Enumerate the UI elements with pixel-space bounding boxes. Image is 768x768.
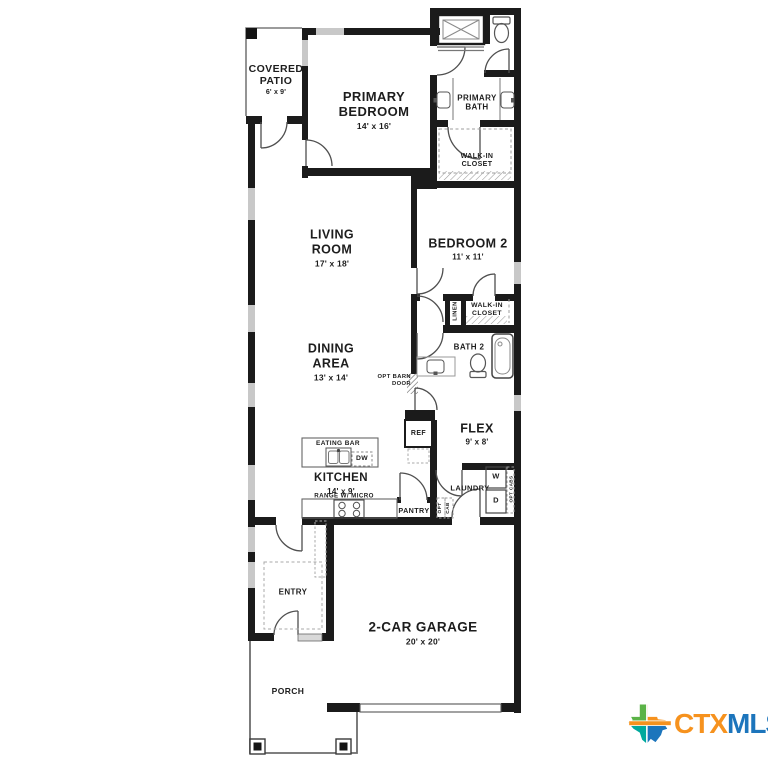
room-dims: 6' x 9' <box>245 89 307 97</box>
room-name: KITCHEN <box>314 472 368 486</box>
label-bath-2: BATH 2 <box>453 342 485 351</box>
label-pantry: PANTRY <box>398 507 429 515</box>
feature-name: RANGE W/ MICRO <box>314 492 374 499</box>
label-primary-walk-in-closet: WALK-IN CLOSET <box>454 153 500 170</box>
refrigerator-box <box>405 420 432 463</box>
feature-name: OPT <box>438 502 444 513</box>
label-walk-in-closet-2: WALK-IN CLOSET <box>465 302 509 318</box>
room-dims: 14' x 16' <box>332 121 416 131</box>
feature-name: OPT BARN DOOR <box>375 374 411 388</box>
shower <box>438 15 484 51</box>
texas-icon <box>628 704 672 744</box>
room-dims: 13' x 14' <box>303 372 359 382</box>
label-porch: PORCH <box>272 686 305 696</box>
feature-name: EATING BAR <box>316 440 360 448</box>
label-refrigerator: REF <box>411 429 426 437</box>
label-opt-barn-door: OPT BARN DOOR <box>375 374 411 388</box>
logo-mls-text: MLS <box>727 710 768 738</box>
label-opt-cab-2: CAB <box>446 502 452 514</box>
room-name: LIVING ROOM <box>304 228 360 258</box>
room-name: DINING AREA <box>303 342 359 372</box>
room-dims: 9' x 8' <box>460 437 494 446</box>
room-name: WALK-IN CLOSET <box>454 153 500 170</box>
porch-posts <box>250 739 351 754</box>
label-opt-cab-1: OPT <box>438 502 444 513</box>
label-linen: LINEN <box>453 301 460 320</box>
room-dims: 20' x 20' <box>368 636 477 646</box>
label-range-micro: RANGE W/ MICRO <box>314 492 374 499</box>
feature-name: CAB <box>446 502 452 514</box>
patio-post <box>246 28 257 39</box>
feature-name: D <box>493 497 499 506</box>
room-name: PRIMARY BATH <box>452 94 502 113</box>
label-dryer: D <box>493 497 499 506</box>
label-washer: W <box>492 473 499 482</box>
room-name: BATH 2 <box>453 342 485 351</box>
room-name: WALK-IN CLOSET <box>465 302 509 318</box>
kitchen-counter-range <box>302 499 397 518</box>
room-name: LAUNDRY <box>450 485 489 494</box>
bath2-vanity <box>417 357 455 376</box>
garage-door <box>360 704 501 712</box>
room-name: BEDROOM 2 <box>428 236 507 251</box>
label-laundry: LAUNDRY <box>450 485 489 494</box>
label-covered-patio: COVERED PATIO 6' x 9' <box>245 63 307 97</box>
door-swings <box>261 47 509 635</box>
label-bedroom-2: BEDROOM 2 11' x 11' <box>428 236 507 261</box>
room-name: FLEX <box>460 421 494 436</box>
label-dining-area: DINING AREA 13' x 14' <box>303 342 359 383</box>
label-dishwasher: DW <box>356 455 368 463</box>
entry-floor <box>264 521 326 629</box>
feature-name: PANTRY <box>398 507 429 515</box>
room-name: COVERED PATIO <box>245 63 307 88</box>
room-name: ENTRY <box>279 587 308 596</box>
feature-name: W <box>492 473 499 482</box>
room-name: PRIMARY BEDROOM <box>332 89 416 120</box>
room-name: PORCH <box>272 686 305 696</box>
label-opt-cabs: OPT CABS <box>508 476 513 503</box>
label-primary-bath: PRIMARY BATH <box>452 94 502 113</box>
ctxmls-logo: CTXMLS <box>628 704 768 744</box>
floor-plan: COVERED PATIO 6' x 9' PRIMARY BEDROOM 14… <box>0 0 768 768</box>
feature-name: REF <box>411 429 426 437</box>
logo-ctx-text: CTX <box>674 710 727 738</box>
feature-name: OPT CABS <box>508 476 513 503</box>
label-living-room: LIVING ROOM 17' x 18' <box>304 228 360 269</box>
label-garage: 2-CAR GARAGE 20' x 20' <box>368 620 477 647</box>
label-primary-bedroom: PRIMARY BEDROOM 14' x 16' <box>332 89 416 131</box>
toilet-primary <box>493 17 510 43</box>
feature-name: DW <box>356 455 368 463</box>
front-door-sill <box>298 634 322 641</box>
room-dims: 11' x 11' <box>428 252 507 261</box>
bathtub <box>492 334 513 378</box>
label-eating-bar: EATING BAR <box>316 440 360 448</box>
room-name: 2-CAR GARAGE <box>368 620 477 636</box>
porch-outline <box>250 641 357 753</box>
room-name: LINEN <box>453 301 460 320</box>
toilet-bath2 <box>470 354 486 378</box>
room-dims: 17' x 18' <box>304 258 360 268</box>
label-entry: ENTRY <box>279 587 308 596</box>
label-flex: FLEX 9' x 8' <box>460 421 494 446</box>
